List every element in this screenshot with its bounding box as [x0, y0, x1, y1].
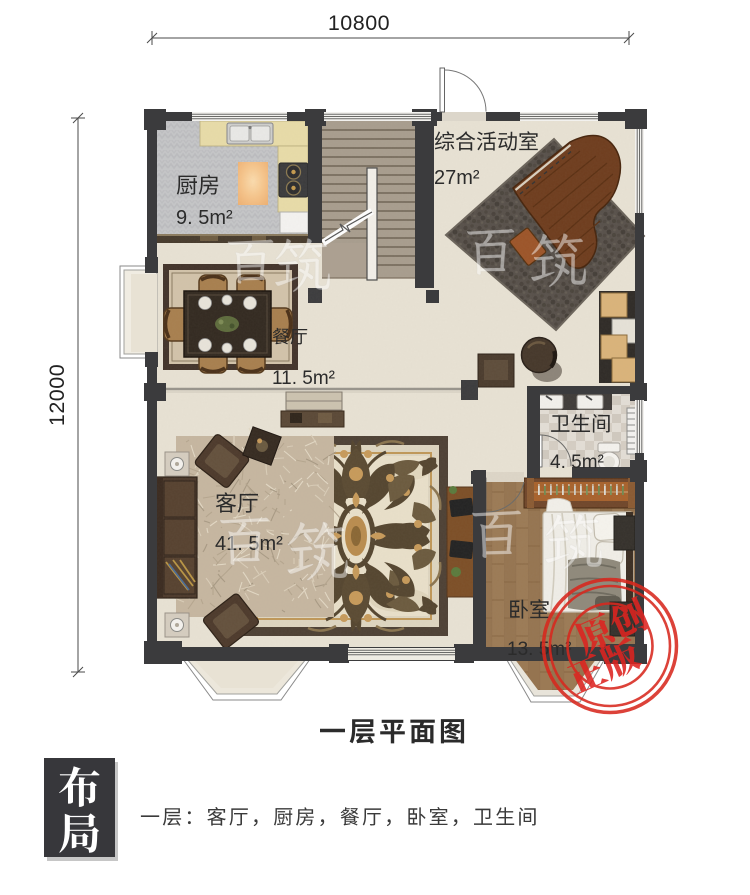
svg-text:27m²: 27m² [434, 167, 480, 189]
svg-text:13. 5m²: 13. 5m² [507, 639, 571, 660]
svg-text:4. 5m²: 4. 5m² [550, 452, 604, 473]
svg-text:9. 5m²: 9. 5m² [176, 207, 233, 229]
svg-text:11. 5m²: 11. 5m² [272, 368, 335, 389]
svg-text:10800: 10800 [328, 11, 390, 35]
svg-text:12000: 12000 [45, 364, 69, 426]
